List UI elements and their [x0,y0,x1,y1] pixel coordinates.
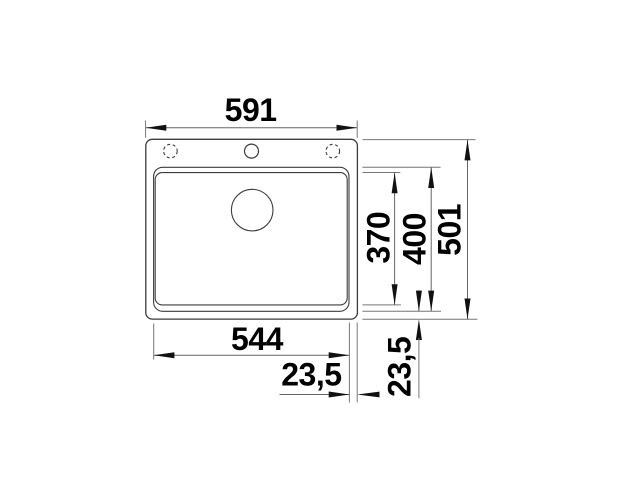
svg-text:23,5: 23,5 [382,337,418,397]
svg-text:501: 501 [432,204,468,256]
svg-text:370: 370 [360,212,396,264]
svg-text:544: 544 [231,321,284,357]
svg-text:400: 400 [396,213,432,265]
svg-text:591: 591 [225,92,277,128]
svg-text:23,5: 23,5 [281,356,341,392]
